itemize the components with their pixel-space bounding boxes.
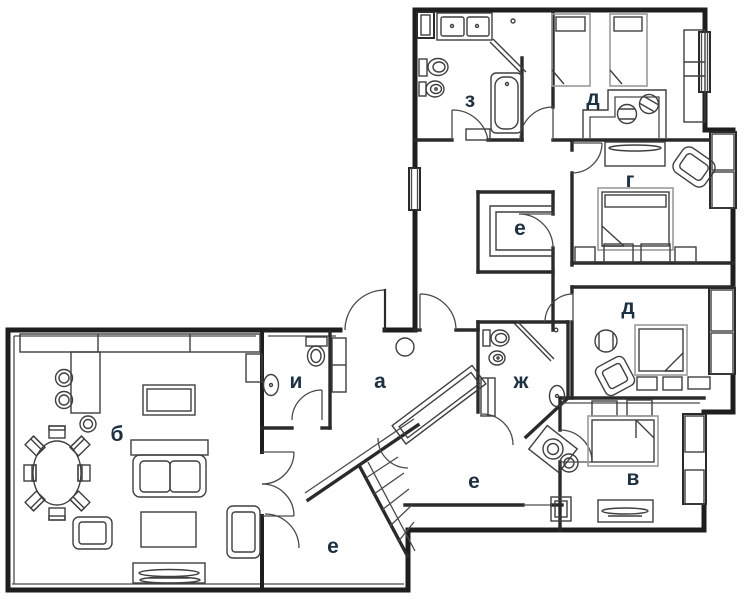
room-label-bathroom-main: ж (513, 370, 530, 393)
living-room-double-door (262, 452, 294, 516)
coffee-table (141, 512, 196, 547)
sink (441, 17, 464, 36)
wc-door (292, 390, 322, 420)
nightstand (575, 247, 595, 262)
master-bedroom-door (572, 143, 602, 173)
room-label-hall: а (374, 370, 386, 393)
interior-walls (262, 12, 733, 588)
armchair (593, 354, 636, 397)
tv (139, 570, 199, 577)
cabinet (246, 354, 262, 382)
bed (635, 325, 687, 375)
floor-plan-drawing: биаееежзддгв (0, 0, 744, 604)
room-label-corridor: е (468, 470, 480, 493)
bed (588, 416, 658, 466)
dining-chairs (24, 426, 90, 520)
room-label-closet-lower: е (327, 535, 339, 558)
window-corridor (409, 168, 420, 210)
double-bed (598, 188, 673, 250)
shower-screen (514, 321, 554, 361)
wall-cabinet (20, 334, 260, 352)
corridor-door (420, 294, 456, 330)
vent-shaft (417, 12, 434, 38)
room-label-bedroom-lower: в (627, 467, 640, 490)
bedroom-middle-door (545, 294, 573, 322)
bed (552, 14, 590, 86)
pillow (556, 17, 585, 31)
bathroom-main-door (482, 414, 513, 445)
tv (609, 145, 661, 151)
toilet-tank (419, 59, 427, 76)
toilet-tank (483, 330, 490, 346)
living-room-furniture (20, 334, 262, 583)
room-label-master-bedroom: г (626, 169, 635, 192)
bedroom-lower-furniture (588, 400, 658, 522)
nightstand (675, 247, 696, 262)
room-label-closet-upper: е (514, 217, 526, 240)
sink (264, 375, 279, 396)
kids-bedroom-door (520, 107, 553, 140)
sink (550, 386, 565, 407)
window-unit-master (710, 132, 736, 208)
window-unit-bedroom-lower (683, 414, 706, 504)
bathroom-top-door (452, 110, 488, 140)
tv (602, 508, 648, 514)
bar-stool (56, 370, 73, 387)
closet-lower-door (265, 514, 299, 548)
bedroom-middle-furniture (593, 325, 710, 398)
dresser (598, 500, 653, 522)
hall-furniture (332, 338, 486, 444)
ceiling-light (396, 338, 414, 356)
bar-stool (56, 392, 73, 409)
pillows (605, 195, 666, 207)
stool (618, 105, 637, 124)
nightstand (688, 377, 710, 389)
toilet-tank (306, 337, 327, 346)
stool (80, 416, 96, 432)
entrance-door (345, 290, 385, 330)
washing-machine (529, 425, 577, 472)
nightstand (637, 377, 657, 390)
room-label-bedroom-middle: д (621, 296, 634, 319)
pillow (614, 17, 642, 31)
kids-bedroom-furniture (552, 14, 705, 138)
room-label-wc: и (290, 370, 303, 393)
room-label-kids-bedroom: д (586, 87, 599, 110)
room-label-bathroom-top: з (465, 89, 475, 112)
room-label-living-room: б (111, 423, 124, 446)
tv-stand (133, 563, 205, 583)
floor-plan: биаееежзддгв (0, 0, 744, 604)
laundry-basket (560, 454, 578, 472)
window-unit-bedroom-middle (709, 288, 735, 374)
bathroom-top-furniture (419, 13, 526, 140)
sofa-console (131, 440, 208, 455)
nightstand (663, 377, 682, 390)
bar-counter (71, 352, 100, 413)
